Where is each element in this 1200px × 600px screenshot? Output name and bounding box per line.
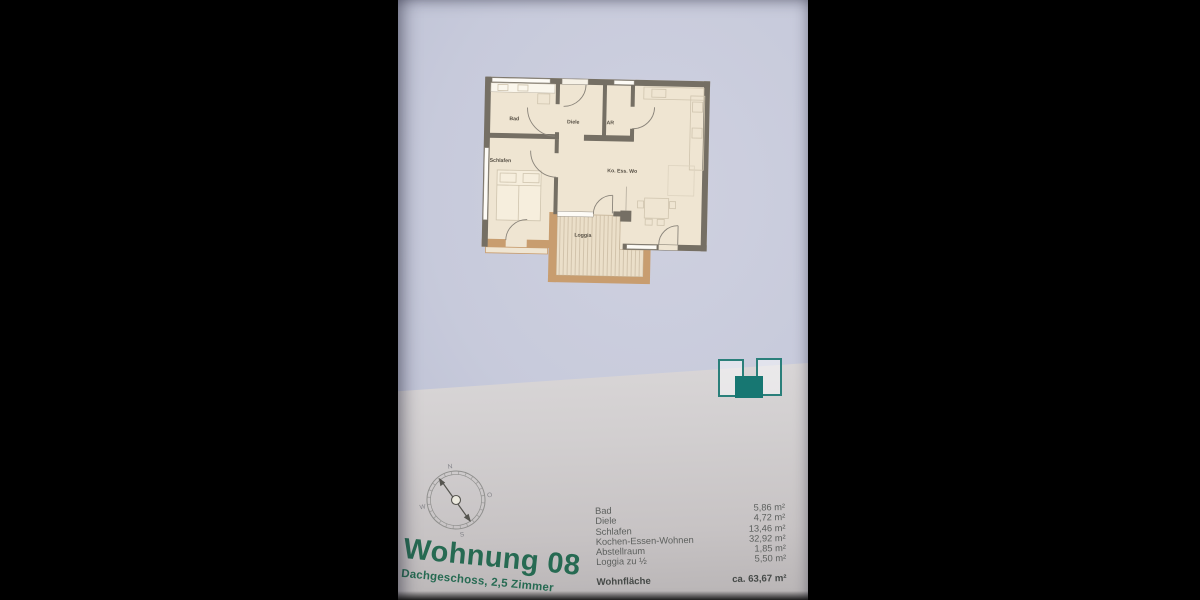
logo [716,356,786,402]
compass-icon: N O S W [418,462,494,538]
row-label: Diele [595,516,616,527]
right-black-bar [808,0,1200,600]
logo-filled-square [735,376,763,398]
room-label-diele: Diele [567,119,580,125]
total-label: Wohnfläche [596,576,650,588]
compass-east-label: O [487,492,493,500]
left-black-bar [0,0,398,600]
floor-plan: Bad Diele AR Schlafen Ko. Ess. Wo Loggia [478,73,714,293]
area-table: Bad 5,86 m² Diele 4,72 m² Schlafen 13,46… [595,502,787,588]
row-value: 1,85 m² [754,543,786,554]
row-value: 5,50 m² [755,553,787,564]
compass-north-label: N [447,463,453,471]
screenshot-canvas: Bad Diele AR Schlafen Ko. Ess. Wo Loggia… [0,0,1200,600]
room-label-wohnen: Ko. Ess. Wo [607,168,637,175]
row-value: 4,72 m² [754,512,786,523]
room-label-schlafen: Schlafen [490,158,512,164]
brochure-page: Bad Diele AR Schlafen Ko. Ess. Wo Loggia… [398,0,808,600]
room-label-loggia: Loggia [574,233,591,239]
compass-needle [439,478,471,522]
room-label-abstellraum: AR [606,120,614,126]
row-label: Schlafen [595,526,631,537]
row-label: Loggia zu ½ [596,556,647,567]
compass-south-label: S [459,531,465,538]
compass-west-label: W [419,503,427,511]
photo-bottom-shadow [398,591,808,600]
row-label: Bad [595,506,612,517]
total-value: ca. 63,67 m² [732,573,787,585]
room-label-bad: Bad [509,116,519,122]
row-value: 5,86 m² [753,502,785,513]
